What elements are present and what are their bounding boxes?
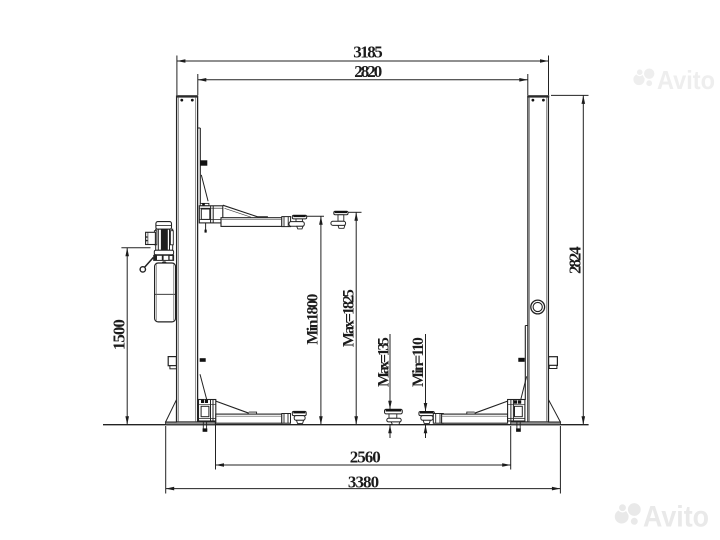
svg-text:1500: 1500 [110, 319, 129, 350]
svg-text:2824: 2824 [565, 246, 584, 274]
svg-text:Max=1825: Max=1825 [340, 289, 357, 347]
svg-text:2820: 2820 [354, 62, 382, 81]
svg-text:Max=135: Max=135 [375, 337, 392, 387]
svg-text:Min1800: Min1800 [304, 294, 321, 345]
svg-text:Avito: Avito [657, 65, 715, 95]
svg-text:3380: 3380 [348, 473, 379, 492]
svg-text:2560: 2560 [350, 448, 381, 467]
svg-text:Min=110: Min=110 [410, 337, 427, 387]
svg-text:3185: 3185 [353, 43, 383, 62]
svg-text:Avito: Avito [643, 501, 709, 534]
